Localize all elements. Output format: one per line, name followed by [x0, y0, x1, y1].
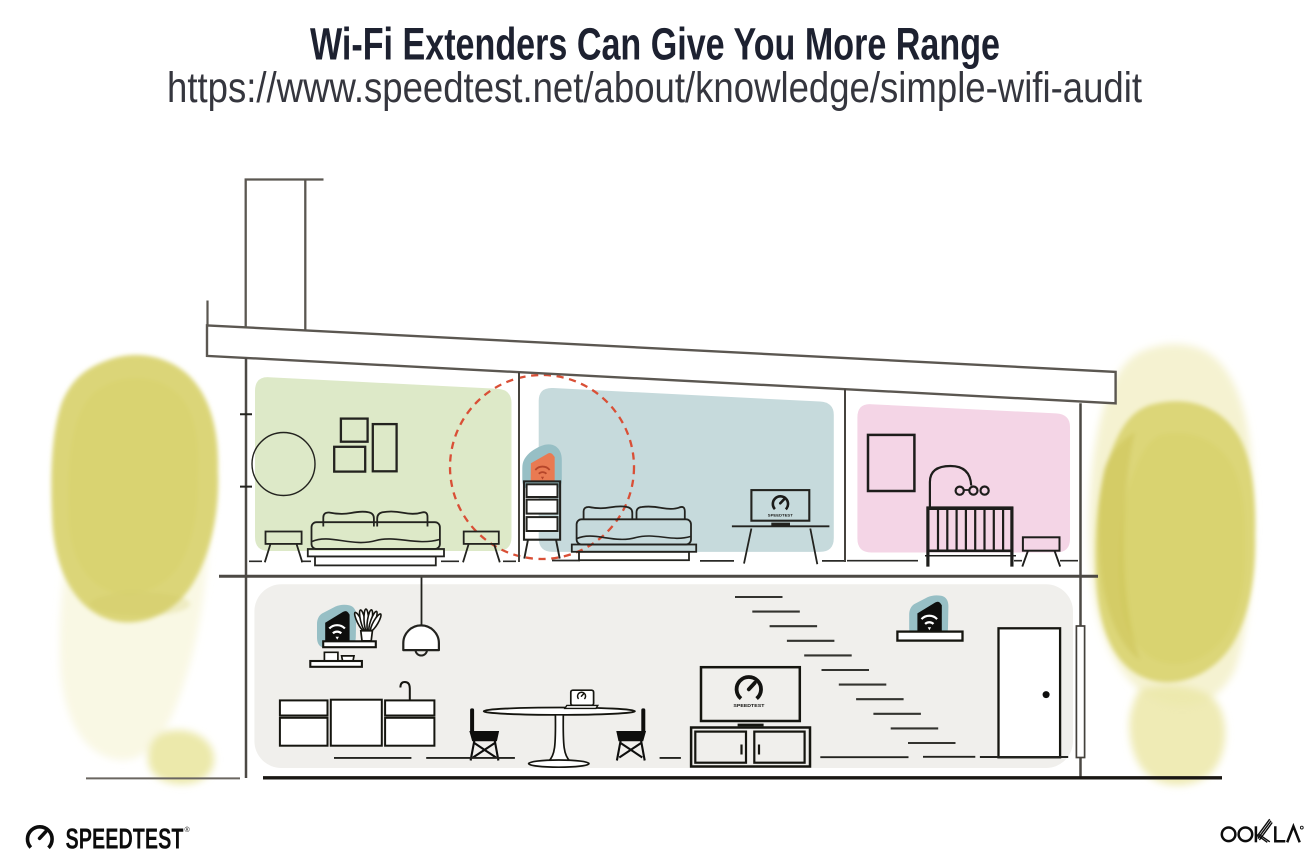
- svg-text:https://www.speedtest.net/abou: https://www.speedtest.net/about/knowledg…: [167, 65, 1142, 112]
- svg-text:®: ®: [185, 826, 191, 834]
- svg-text:SPEEDTEST: SPEEDTEST: [66, 823, 184, 855]
- svg-text:Wi-Fi Extenders Can Give You M: Wi-Fi Extenders Can Give You More Range: [310, 19, 1000, 70]
- svg-text:SPEEDTEST: SPEEDTEST: [733, 703, 764, 708]
- svg-text:SPEEDTEST: SPEEDTEST: [768, 513, 794, 517]
